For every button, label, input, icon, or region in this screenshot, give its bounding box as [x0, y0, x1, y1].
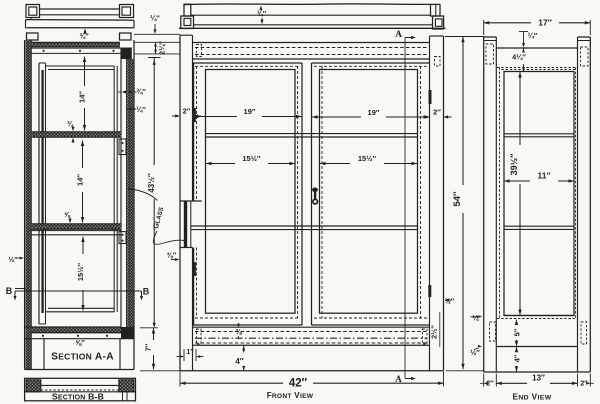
svg-text:17″: 17″ [538, 18, 552, 28]
svg-text:4″: 4″ [513, 354, 522, 362]
svg-text:SECTION A-A: SECTION A-A [51, 351, 114, 362]
svg-text:15½″: 15½″ [358, 154, 377, 163]
svg-text:2¼″: 2¼″ [158, 41, 167, 55]
svg-text:39½″: 39½″ [509, 153, 519, 176]
svg-text:⅝: ⅝ [64, 210, 71, 219]
svg-text:2″: 2″ [183, 107, 191, 116]
svg-text:B: B [6, 286, 13, 296]
svg-text:4″: 4″ [235, 357, 243, 366]
svg-text:¾″: ¾″ [136, 87, 146, 96]
svg-text:2½″: 2½″ [430, 325, 439, 339]
svg-text:¼″: ¼″ [528, 31, 538, 40]
svg-text:5″: 5″ [513, 328, 522, 336]
svg-text:14″: 14″ [76, 174, 85, 186]
svg-text:19″: 19″ [244, 107, 256, 116]
svg-text:15½″: 15½″ [242, 154, 261, 163]
svg-text:B: B [143, 287, 150, 297]
svg-text:2″: 2″ [433, 108, 441, 117]
svg-text:13″: 13″ [532, 373, 545, 382]
svg-text:A: A [395, 30, 402, 40]
svg-text:15½″: 15½″ [76, 263, 85, 282]
svg-text:11″: 11″ [537, 171, 550, 181]
svg-text:½″: ½″ [8, 256, 18, 264]
svg-text:A: A [395, 374, 402, 384]
svg-text:¾″: ¾″ [257, 10, 267, 18]
svg-text:¼″: ¼″ [150, 14, 160, 23]
svg-text:4¼″: 4¼″ [512, 53, 526, 62]
svg-text:END VIEW: END VIEW [512, 392, 551, 401]
svg-text:1″: 1″ [186, 349, 194, 356]
svg-text:FRONT VIEW: FRONT VIEW [267, 391, 314, 400]
svg-text:7″: 7″ [144, 343, 153, 351]
svg-text:½″: ½″ [445, 297, 455, 306]
svg-text:54″: 54″ [452, 191, 463, 207]
svg-text:⅜: ⅜ [235, 327, 242, 336]
svg-text:⅝″: ⅝″ [75, 338, 85, 347]
svg-text:43½″: 43½″ [147, 173, 156, 193]
svg-text:19″: 19″ [368, 108, 380, 117]
svg-text:42″: 42″ [289, 378, 308, 390]
svg-text:14″: 14″ [78, 91, 87, 103]
svg-text:¼″: ¼″ [136, 105, 146, 114]
